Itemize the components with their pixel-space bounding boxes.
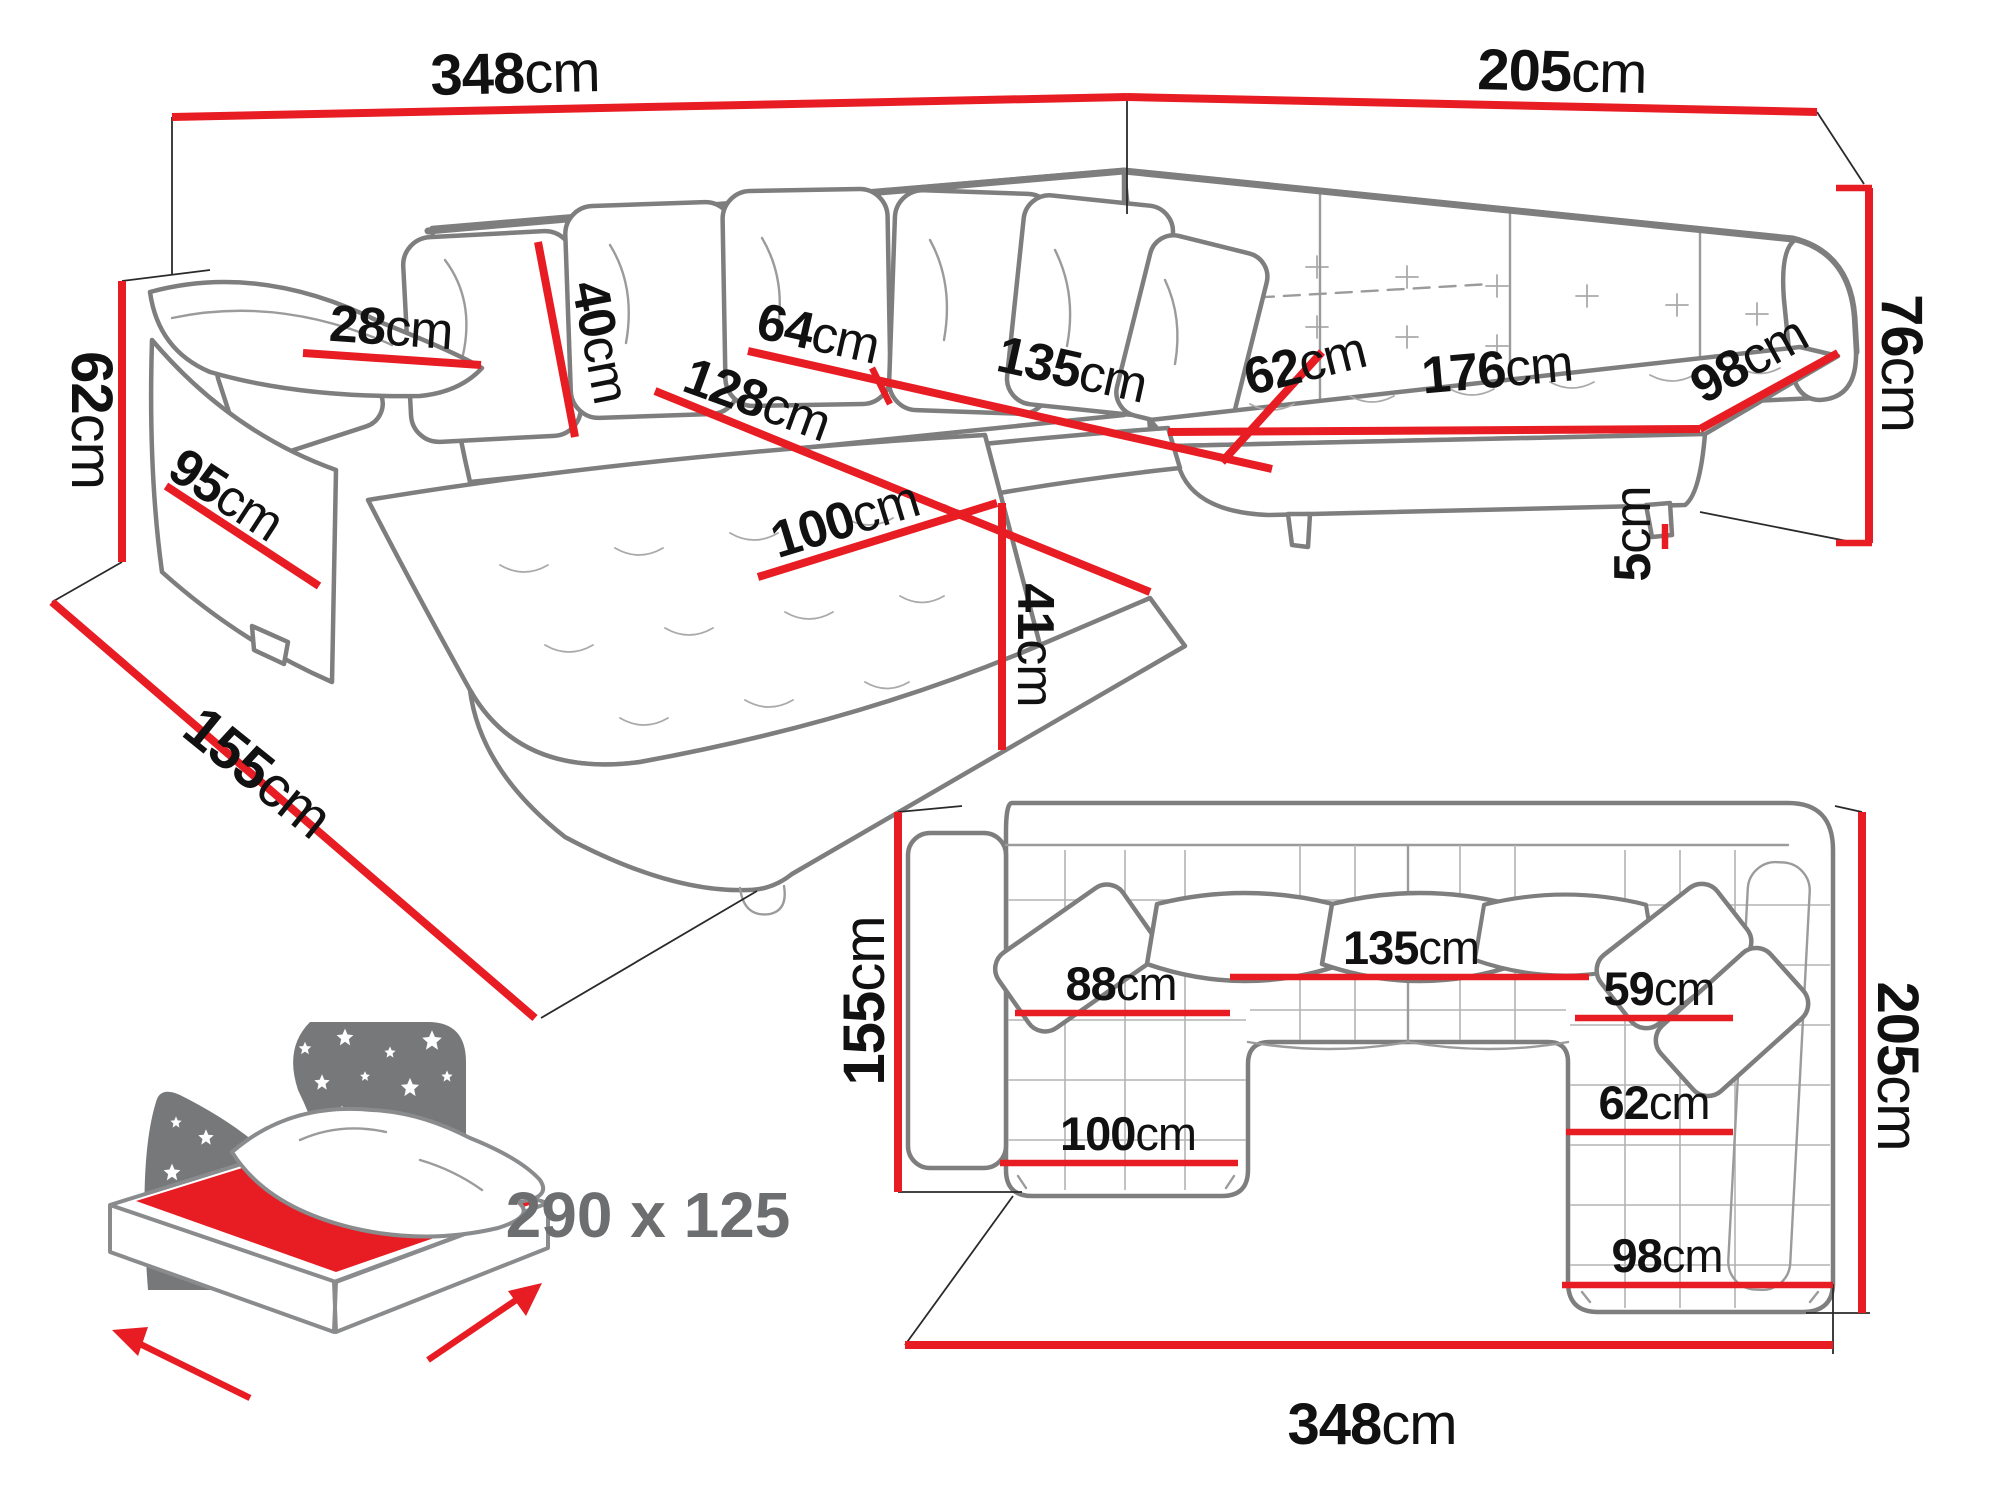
plan-left-armrest bbox=[908, 833, 1006, 1168]
plan-label-205: 205cm bbox=[1866, 981, 1931, 1150]
arrow-front-edge bbox=[132, 1340, 250, 1398]
arrow-side-edge bbox=[428, 1296, 522, 1360]
plan-label-88: 88cm bbox=[1066, 957, 1177, 1010]
sofa-bed-function-icon: 290 x 125 bbox=[110, 1022, 790, 1398]
plan-label-155: 155cm bbox=[832, 916, 897, 1085]
sofa-leg-right-1 bbox=[1288, 514, 1310, 547]
label-62-left: 62cm bbox=[60, 351, 125, 489]
plan-label-348: 348cm bbox=[1287, 1392, 1456, 1457]
sofa-dimension-diagram: 348cm 205cm 76cm 62cm 155cm 95cm 28cm 40… bbox=[0, 0, 2000, 1500]
dim-line-348-top bbox=[172, 97, 1127, 117]
plan-label-98: 98cm bbox=[1612, 1229, 1723, 1282]
plan-label-135: 135cm bbox=[1343, 921, 1479, 974]
label-28-armtop: 28cm bbox=[328, 295, 455, 361]
plan-view: 155cm 205cm 348cm 88cm 135cm 59cm 62cm 1… bbox=[832, 803, 1931, 1457]
label-76-right: 76cm bbox=[1870, 294, 1935, 432]
plan-label-62: 62cm bbox=[1599, 1076, 1710, 1129]
label-348-top: 348cm bbox=[430, 39, 601, 108]
sleeping-area-size: 290 x 125 bbox=[506, 1179, 791, 1251]
dim-line-205-top bbox=[1127, 97, 1817, 112]
label-5-leg: 5cm bbox=[1604, 486, 1662, 581]
label-205-top: 205cm bbox=[1477, 37, 1648, 106]
label-155-front: 155cm bbox=[172, 694, 344, 851]
diagram-page: 348cm 205cm 76cm 62cm 155cm 95cm 28cm 40… bbox=[0, 0, 2000, 1500]
arrow-front-head bbox=[112, 1327, 148, 1356]
dim-line-176-seat bbox=[1168, 429, 1700, 432]
plan-label-100: 100cm bbox=[1060, 1107, 1196, 1160]
label-41-height: 41cm bbox=[1006, 583, 1064, 706]
plan-label-59: 59cm bbox=[1604, 962, 1715, 1015]
